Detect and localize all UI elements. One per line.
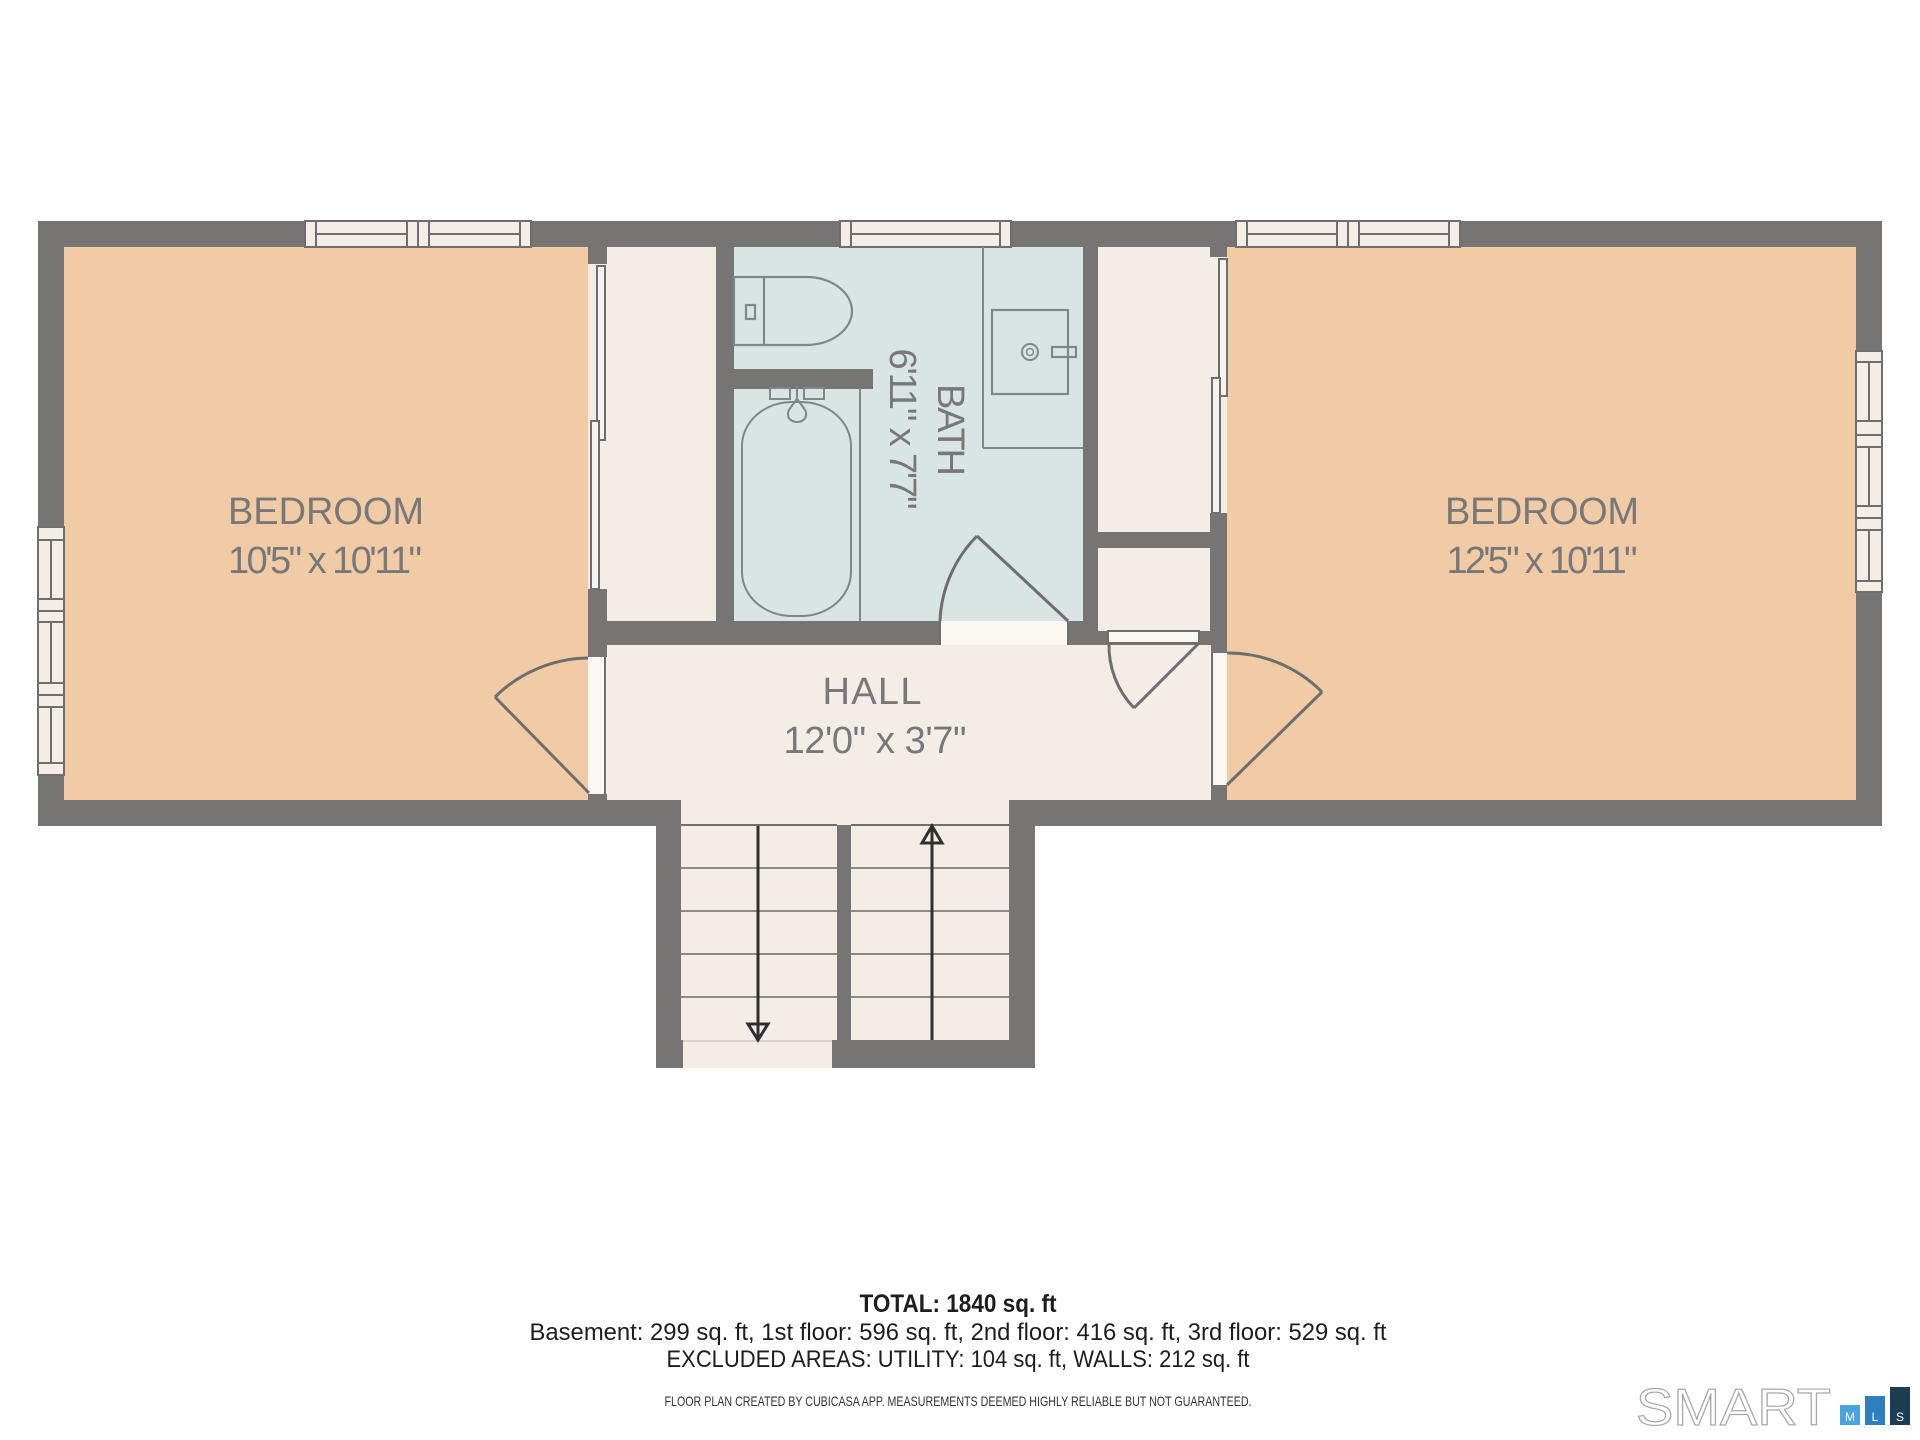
svg-text:HALL: HALL — [823, 671, 922, 713]
svg-text:Basement: 299 sq. ft, 1st floo: Basement: 299 sq. ft, 1st floor: 596 sq.… — [530, 1319, 1387, 1346]
svg-text:S: S — [1896, 1410, 1904, 1424]
svg-text:SMART: SMART — [1636, 1379, 1831, 1437]
svg-text:TOTAL: 1840 sq. ft: TOTAL: 1840 sq. ft — [860, 1290, 1058, 1318]
svg-text:12'0" x 3'7": 12'0" x 3'7" — [784, 720, 967, 762]
svg-text:BATH: BATH — [929, 384, 971, 476]
svg-text:EXCLUDED AREAS: UTILITY: 104 s: EXCLUDED AREAS: UTILITY: 104 sq. ft, WAL… — [667, 1346, 1250, 1373]
svg-text:FLOOR PLAN CREATED BY CUBICASA: FLOOR PLAN CREATED BY CUBICASA APP. MEAS… — [665, 1393, 1252, 1409]
svg-text:M: M — [1845, 1410, 1855, 1424]
svg-text:12'5" x 10'11": 12'5" x 10'11" — [1447, 540, 1638, 582]
svg-text:BEDROOM: BEDROOM — [1445, 491, 1639, 533]
svg-text:6'11" x 7'7": 6'11" x 7'7" — [881, 349, 923, 510]
svg-text:BEDROOM: BEDROOM — [228, 491, 424, 533]
svg-text:10'5" x 10'11": 10'5" x 10'11" — [228, 540, 422, 582]
svg-text:L: L — [1872, 1410, 1879, 1424]
